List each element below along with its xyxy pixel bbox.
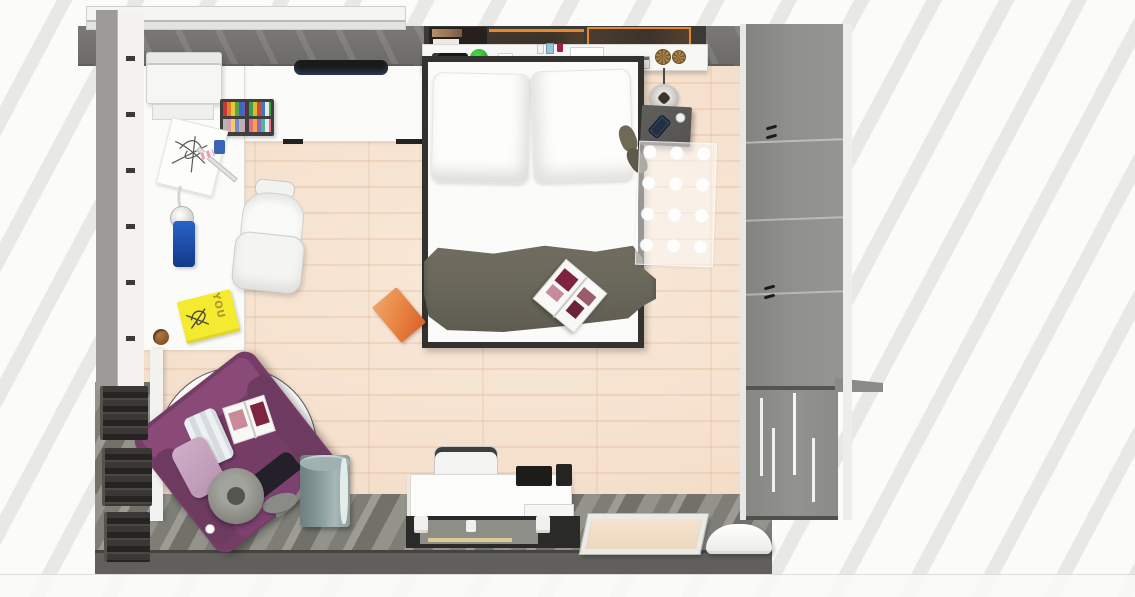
magazine-photo — [566, 300, 585, 319]
wardrobe-seam — [746, 290, 843, 295]
basket — [672, 50, 686, 64]
desk-floor-mat — [406, 516, 580, 548]
wall-monitor — [294, 60, 388, 75]
desk-foot — [414, 516, 428, 530]
book-photo — [228, 409, 248, 431]
poster-photo — [432, 29, 462, 37]
basket — [655, 49, 671, 65]
desk-black-book — [516, 466, 552, 486]
wall-books — [104, 512, 150, 562]
sheer-rug — [635, 141, 717, 268]
lamp-shade-center — [227, 487, 245, 505]
wardrobe-handle — [766, 134, 777, 140]
office-chair — [230, 177, 313, 296]
desk-foot — [536, 516, 550, 530]
eraser-blue — [214, 140, 225, 154]
desk-edge-tick — [283, 139, 303, 144]
wardrobe-door-handle — [812, 438, 815, 502]
mug — [675, 112, 686, 123]
desk-edge-tick — [396, 139, 424, 144]
pendant-bulb — [657, 91, 671, 105]
corkboard — [580, 514, 709, 554]
art-set-markers — [249, 102, 271, 116]
shelf-bottle-white — [537, 44, 544, 54]
wardrobe-seam — [746, 216, 843, 221]
printer-tray — [152, 104, 214, 120]
phone — [647, 114, 671, 139]
wardrobe-right-trim — [843, 24, 852, 520]
desk-black-book — [556, 464, 572, 486]
left-wall-trim — [118, 12, 144, 390]
wall-books — [100, 386, 148, 440]
wardrobe-handle — [766, 125, 777, 131]
printer — [146, 52, 222, 104]
mat-ruler — [428, 538, 512, 542]
wardrobe-seam — [746, 138, 843, 143]
wardrobe-door-handle — [772, 428, 775, 492]
art-set-pencils — [223, 102, 245, 116]
render-base-line — [0, 574, 1135, 597]
bin-highlight — [340, 458, 348, 524]
floor-lamp-shade — [208, 468, 264, 524]
wardrobe-handle — [764, 285, 775, 291]
shelf-lipstick — [557, 43, 563, 52]
cookie — [153, 329, 169, 345]
wardrobe-lower — [746, 390, 838, 520]
left-wall — [96, 10, 118, 390]
pillow — [431, 72, 531, 184]
blue-bottle — [173, 221, 195, 267]
wall-trim-ticks — [126, 56, 135, 386]
chair-seat — [230, 230, 306, 295]
lamp-switch-ball — [205, 524, 215, 534]
wardrobe-upper — [746, 24, 843, 390]
art-set-markers — [249, 119, 271, 132]
wardrobe-door-handle — [793, 393, 796, 475]
bedroom-render: YOU — [0, 0, 1135, 597]
wardrobe-door-handle — [760, 398, 763, 476]
waste-bin — [300, 455, 350, 527]
pillow — [530, 68, 633, 183]
book-photo — [250, 401, 270, 426]
desk-foot — [466, 520, 476, 532]
shelf-bottle-blue — [546, 43, 554, 54]
wall-books — [102, 448, 152, 506]
